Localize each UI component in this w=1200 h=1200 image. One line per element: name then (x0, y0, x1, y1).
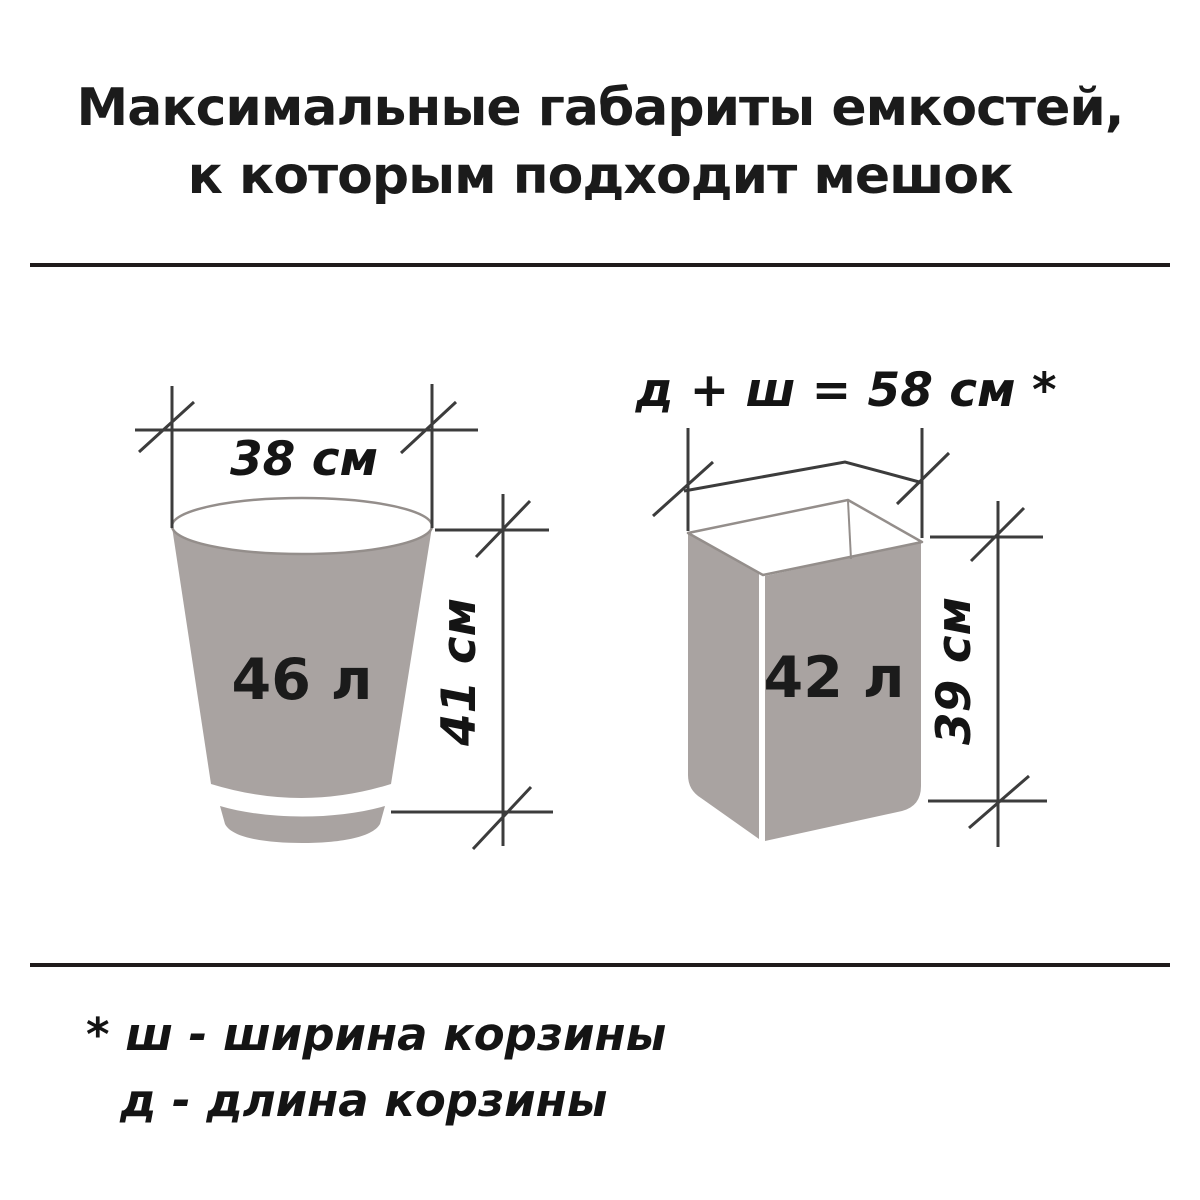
round-bin-height-label: 41 см (433, 542, 487, 802)
round-bin-base-ring (220, 806, 385, 843)
footnote-line1: * ш - ширина корзины (86, 1002, 666, 1068)
diagram-page: Максимальные габариты емкостей, к которы… (0, 0, 1200, 1200)
footnote: * ш - ширина корзины д - длина корзины (86, 1002, 666, 1134)
rect-bin-volume-label: 42 л (714, 648, 954, 708)
round-bin-volume-label: 46 л (182, 650, 422, 710)
round-bin-opening (172, 498, 432, 554)
footnote-line2: д - длина корзины (86, 1068, 666, 1134)
top-tick-slash-left (653, 462, 713, 516)
top-dimension-polyline (684, 462, 923, 491)
rect-bin-formula-label: д + ш = 58 см * (616, 364, 1076, 418)
round-bin-width-label: 38 см (174, 433, 434, 487)
